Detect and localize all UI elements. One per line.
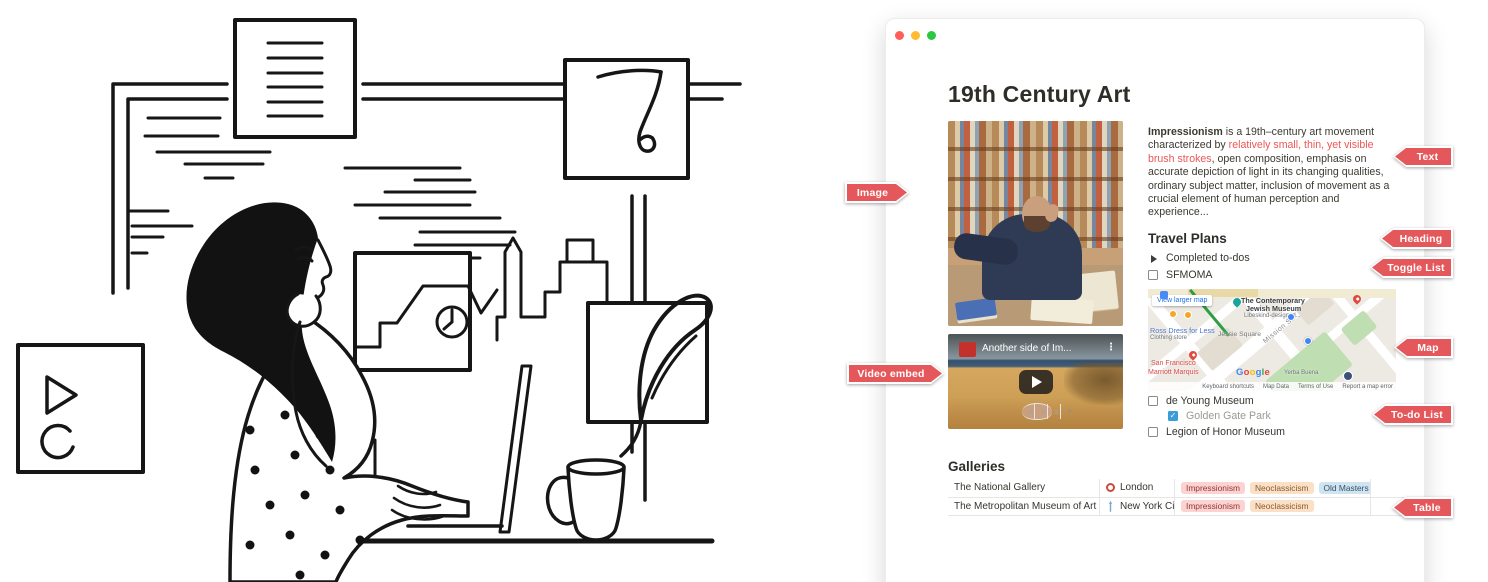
table-row[interactable]: The Metropolitan Museum of ArtNew York C… xyxy=(948,498,1426,517)
todo-item[interactable]: ✓Golden Gate Park xyxy=(1168,410,1271,422)
galleries-table: Aa Name ≡ Location ≡ Tags + The National… xyxy=(948,479,1426,516)
video-embed-callout-label: Video embed xyxy=(847,363,944,384)
tag-pill[interactable]: Neoclassicism xyxy=(1250,500,1314,512)
coffee-mug xyxy=(548,460,624,540)
video-title[interactable]: Another side of Im... xyxy=(982,343,1072,354)
checkbox-unchecked[interactable] xyxy=(1148,427,1158,437)
music-note-frame xyxy=(565,60,688,178)
todo-item[interactable]: Legion of Honor Museum xyxy=(1148,426,1285,438)
map-footer: Keyboard shortcutsMap DataTerms of UseRe… xyxy=(1148,382,1396,391)
callout-shell: Map xyxy=(1394,337,1453,358)
location-name: London xyxy=(1120,482,1153,493)
heading-callout-label: Heading xyxy=(1380,228,1453,249)
page-title: 19th Century Art xyxy=(948,81,1131,108)
todo-label: SFMOMA xyxy=(1166,269,1213,281)
text-callout-label: Text xyxy=(1393,146,1453,167)
google-map-embed[interactable]: View larger mapThe ContemporaryJewish Mu… xyxy=(1148,289,1396,391)
paragraph-segment: Impressionism xyxy=(1148,126,1223,138)
callout-fill: Video embed xyxy=(849,365,942,382)
callout-text: Image xyxy=(857,187,888,199)
callout-shell: Table xyxy=(1392,497,1453,518)
column-header-location[interactable]: ≡ Location xyxy=(1034,404,1047,419)
bluesq-map-pin-icon[interactable] xyxy=(1160,291,1168,299)
chart-frame xyxy=(355,253,497,370)
todo-label: Golden Gate Park xyxy=(1186,410,1271,422)
gallery-name: The Metropolitan Museum of Art xyxy=(954,501,1096,512)
video-menu-icon[interactable]: ⋮ xyxy=(1106,342,1116,353)
play-button[interactable] xyxy=(1019,370,1053,394)
map-callout-label: Map xyxy=(1394,337,1453,358)
blue-map-pin-icon[interactable] xyxy=(1287,313,1295,321)
add-column-button[interactable]: + xyxy=(1060,404,1073,419)
toggle-list-callout-label: Toggle List xyxy=(1370,257,1453,278)
checkbox-unchecked[interactable] xyxy=(1148,396,1158,406)
map-footer-link[interactable]: Map Data xyxy=(1263,384,1289,390)
location-property-icon: ≡ xyxy=(1041,407,1046,417)
document-frame xyxy=(235,20,355,137)
column-header-tags[interactable]: ≡ Tags xyxy=(1047,404,1060,419)
orange-map-pin-icon[interactable] xyxy=(1184,311,1192,319)
callout-fill: To-do List xyxy=(1374,406,1451,423)
map-footer-link[interactable]: Terms of Use xyxy=(1298,384,1333,390)
todo-item[interactable]: de Young Museum xyxy=(1148,395,1254,407)
map-footer-link[interactable]: Report a map error xyxy=(1342,384,1393,390)
callout-shell: To-do List xyxy=(1372,404,1453,425)
degas-portrait-image[interactable] xyxy=(948,121,1123,326)
impressionism-paragraph[interactable]: Impressionism is a 19th–century art move… xyxy=(1148,126,1400,220)
callout-text: Table xyxy=(1413,502,1441,514)
tag-pill[interactable]: Neoclassicism xyxy=(1250,482,1314,494)
cell-tags[interactable]: ImpressionismNeoclassicism xyxy=(1174,498,1370,516)
callout-text: Toggle List xyxy=(1387,262,1444,274)
callout-fill: Map xyxy=(1396,339,1451,356)
close-window-button[interactable] xyxy=(895,31,904,40)
woman-hand xyxy=(287,294,320,326)
todo-item[interactable]: SFMOMA xyxy=(1148,269,1213,281)
tag-pill[interactable]: Impressionism xyxy=(1181,500,1245,512)
map-label: Marriott Marquis xyxy=(1148,369,1199,376)
image-callout-label: Image xyxy=(845,182,909,203)
woman-face xyxy=(317,240,331,298)
travel-plans-heading[interactable]: Travel Plans xyxy=(1148,231,1227,246)
map-label: Jewish Museum xyxy=(1246,304,1301,313)
location-name: New York City xyxy=(1120,501,1174,512)
callout-fill: Table xyxy=(1394,499,1451,516)
cell-name[interactable]: The Metropolitan Museum of Art xyxy=(948,501,1099,512)
cell-location[interactable]: New York City xyxy=(1099,498,1174,516)
tags-property-icon: ≡ xyxy=(1054,407,1059,417)
checkbox-checked[interactable]: ✓ xyxy=(1168,411,1178,421)
gallery-name: The National Gallery xyxy=(954,482,1045,493)
callout-shell: Text xyxy=(1393,146,1453,167)
map-label: Ross Dress for Less xyxy=(1150,326,1215,335)
navy-map-pin-icon[interactable] xyxy=(1343,371,1353,381)
blue-map-pin-icon[interactable] xyxy=(1304,337,1312,345)
table-row[interactable]: The National GalleryLondonImpressionismN… xyxy=(948,479,1426,498)
channel-avatar[interactable] xyxy=(959,342,976,357)
map-label: Yerba Buena xyxy=(1284,370,1318,376)
app-window: 19th Century Art Impressionism is a 19th… xyxy=(885,18,1425,582)
callout-text: Video embed xyxy=(857,368,924,380)
orange-map-pin-icon[interactable] xyxy=(1169,310,1177,318)
tag-pill[interactable]: Impressionism xyxy=(1181,482,1245,494)
callout-fill: Heading xyxy=(1382,230,1451,247)
callout-fill: Toggle List xyxy=(1372,259,1451,276)
leaf-frame xyxy=(588,296,711,456)
callout-shell: Video embed xyxy=(847,363,944,384)
google-logo: Google xyxy=(1236,367,1270,378)
cell-location[interactable]: London xyxy=(1099,479,1174,497)
media-frame xyxy=(18,345,143,472)
todo-label: de Young Museum xyxy=(1166,395,1254,407)
table-callout-label: Table xyxy=(1392,497,1453,518)
google-letter: G xyxy=(1236,367,1244,378)
nyc-icon xyxy=(1106,501,1115,512)
toggle-triangle-icon[interactable] xyxy=(1151,255,1157,263)
cell-empty[interactable] xyxy=(1370,479,1426,497)
cell-tags[interactable]: ImpressionismNeoclassicismOld Masters xyxy=(1174,479,1370,497)
cell-name[interactable]: The National Gallery xyxy=(948,482,1099,493)
to-do-list-callout-label: To-do List xyxy=(1372,404,1453,425)
callout-fill: Text xyxy=(1395,148,1451,165)
callout-text: To-do List xyxy=(1391,409,1443,421)
toggle-row[interactable]: Completed to-dos xyxy=(1148,252,1250,264)
map-footer-link[interactable]: Keyboard shortcuts xyxy=(1202,384,1254,390)
callout-text: Map xyxy=(1417,342,1439,354)
callout-shell: Heading xyxy=(1380,228,1453,249)
callout-text: Text xyxy=(1417,151,1439,163)
checkbox-unchecked[interactable] xyxy=(1148,270,1158,280)
toggle-label: Completed to-dos xyxy=(1166,252,1250,264)
callout-fill: Image xyxy=(847,184,907,201)
column-header-name[interactable]: Aa Name xyxy=(1022,406,1034,417)
galleries-heading[interactable]: Galleries xyxy=(948,459,1005,474)
london-icon xyxy=(1106,483,1115,492)
tag-pill[interactable]: Old Masters xyxy=(1319,482,1370,494)
window-controls xyxy=(895,31,936,40)
page: 19th Century Art Impressionism is a 19th… xyxy=(0,0,1488,582)
table-header-row: Aa Name ≡ Location ≡ Tags + xyxy=(1022,403,1052,420)
todo-label: Legion of Honor Museum xyxy=(1166,426,1285,438)
map-label: Jessie Square xyxy=(1218,331,1261,338)
map-label: San Francisco xyxy=(1151,360,1196,367)
callout-text: Heading xyxy=(1400,233,1443,245)
map-label: Clothing store xyxy=(1150,335,1187,341)
callout-shell: Toggle List xyxy=(1370,257,1453,278)
zoom-window-button[interactable] xyxy=(927,31,936,40)
google-letter: e xyxy=(1264,367,1269,378)
callout-shell: Image xyxy=(845,182,909,203)
minimize-window-button[interactable] xyxy=(911,31,920,40)
office-illustration xyxy=(0,0,880,582)
